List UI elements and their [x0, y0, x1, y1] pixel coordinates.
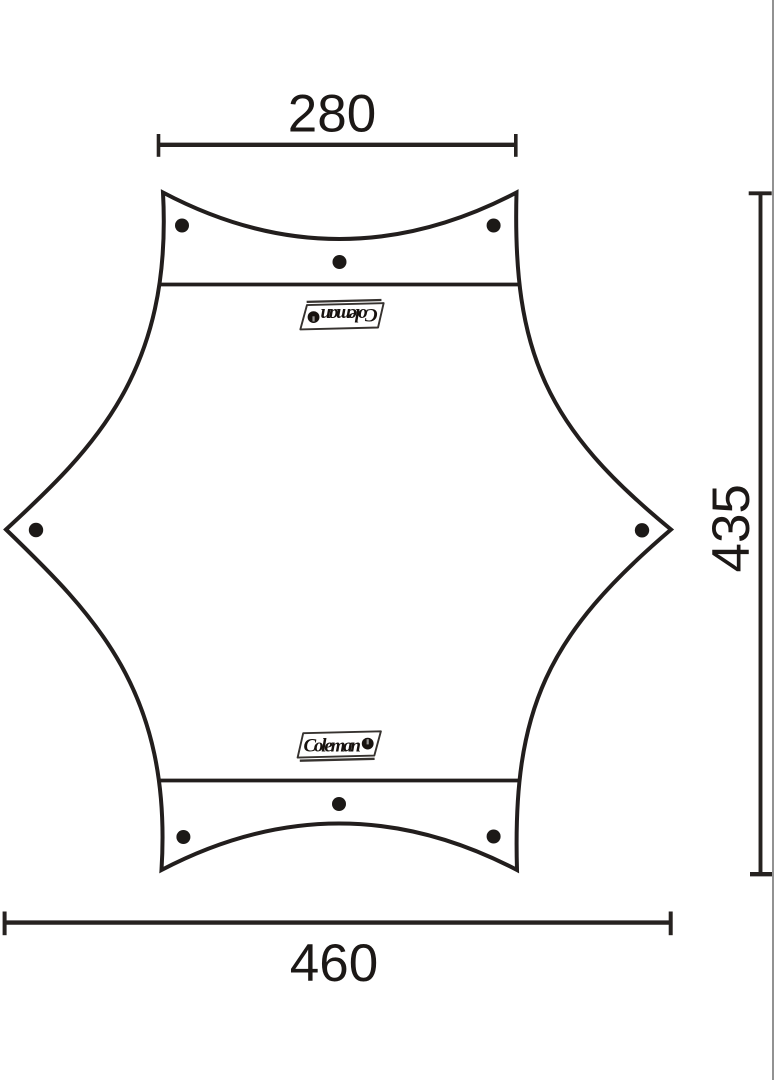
- svg-text:280: 280: [288, 84, 376, 143]
- svg-text:460: 460: [290, 934, 378, 993]
- svg-text:435: 435: [702, 484, 761, 572]
